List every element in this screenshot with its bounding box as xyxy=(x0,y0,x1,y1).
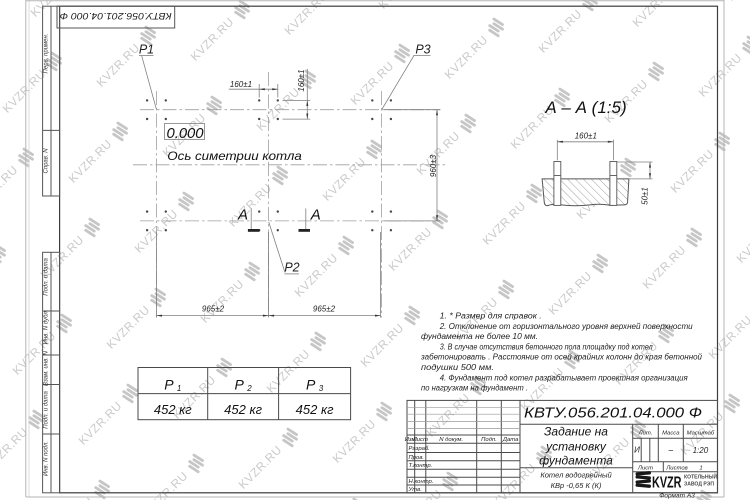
svg-text:КОТЕЛЬНЫЙ: КОТЕЛЬНЫЙ xyxy=(684,473,717,481)
svg-text:Листов: Листов xyxy=(665,466,687,472)
svg-text:А – А (1:5): А – А (1:5) xyxy=(544,98,626,117)
svg-text:Котел водогрейный: Котел водогрейный xyxy=(540,471,612,480)
svg-text:Подп. и дата: Подп. и дата xyxy=(43,391,49,429)
svg-text:P2: P2 xyxy=(284,261,299,275)
svg-text:установку: установку xyxy=(545,440,607,454)
svg-text:960±3: 960±3 xyxy=(429,154,438,177)
svg-text:Н.контр.: Н.контр. xyxy=(409,479,434,485)
svg-text:1: 1 xyxy=(699,466,702,472)
svg-text:фундамента не более 10 мм.: фундамента не более 10 мм. xyxy=(421,331,538,341)
svg-text:Формат А3: Формат А3 xyxy=(659,492,695,499)
svg-text:KVZR: KVZR xyxy=(652,474,682,491)
svg-text:452 кг: 452 кг xyxy=(224,402,262,417)
svg-text:160±1: 160±1 xyxy=(230,80,252,89)
svg-text:Лист: Лист xyxy=(637,466,653,472)
svg-text:–: – xyxy=(668,446,674,455)
svg-text:И: И xyxy=(634,446,640,455)
svg-text:А: А xyxy=(310,206,321,223)
svg-text:КВр -0,65 К (К): КВр -0,65 К (К) xyxy=(551,481,602,490)
svg-text:КВТУ.056.201.04.000 Ф: КВТУ.056.201.04.000 Ф xyxy=(524,405,702,422)
svg-text:Перв. примен.: Перв. примен. xyxy=(43,34,49,74)
svg-text:N докум.: N докум. xyxy=(439,437,463,443)
svg-text:452 кг: 452 кг xyxy=(296,402,334,417)
svg-text:Инв. N дубл.: Инв. N дубл. xyxy=(43,310,49,345)
svg-text:3. В случае отсутствия бет: 3. В случае отсутствия бетонного пола пл… xyxy=(440,341,653,351)
svg-text:160±1: 160±1 xyxy=(297,69,306,91)
svg-text:Инв. N подл.: Инв. N подл. xyxy=(43,441,49,476)
svg-text:КВТУ.056.201.04.000 Ф: КВТУ.056.201.04.000 Ф xyxy=(60,11,172,21)
svg-text:Разраб.: Разраб. xyxy=(409,446,430,452)
svg-text:Дата: Дата xyxy=(502,437,519,443)
svg-text:452 кг: 452 кг xyxy=(154,402,192,417)
svg-text:Лит.: Лит. xyxy=(638,431,653,437)
svg-text:1:20: 1:20 xyxy=(693,446,709,455)
svg-text:Ось симетрии котла: Ось симетрии котла xyxy=(167,149,302,163)
svg-text:Утв.: Утв. xyxy=(408,487,422,493)
svg-text:Подп.: Подп. xyxy=(481,437,497,443)
svg-text:Задание на: Задание на xyxy=(544,425,608,439)
svg-text:Лист: Лист xyxy=(412,437,428,443)
svg-text:забетонировать . Расстояние: забетонировать . Расстояние от осей край… xyxy=(420,352,702,362)
svg-text:P1: P1 xyxy=(139,43,154,57)
svg-text:подушки 500 мм.: подушки 500 мм. xyxy=(421,362,494,372)
svg-text:Масштаб: Масштаб xyxy=(687,431,715,437)
svg-text:Справ. N: Справ. N xyxy=(43,148,49,174)
svg-text:фундамента: фундамента xyxy=(539,454,613,468)
svg-text:Пров.: Пров. xyxy=(409,455,425,461)
svg-text:ЗАВОД РЭП: ЗАВОД РЭП xyxy=(684,482,714,488)
svg-text:4. Фундамент под котел раз: 4. Фундамент под котел разрабатывает про… xyxy=(440,372,688,382)
svg-text:P3: P3 xyxy=(415,43,430,57)
svg-text:по нагрузкам на фундамент .: по нагрузкам на фундамент . xyxy=(421,383,528,393)
svg-text:0.000: 0.000 xyxy=(166,126,204,142)
svg-text:Взам. инв. N: Взам. инв. N xyxy=(43,350,49,386)
svg-text:1. * Размер для справок .: 1. * Размер для справок . xyxy=(440,311,542,321)
svg-text:965±2: 965±2 xyxy=(313,305,336,314)
svg-text:А: А xyxy=(237,206,248,223)
svg-text:965±2: 965±2 xyxy=(202,305,225,314)
svg-text:50±1: 50±1 xyxy=(641,187,650,205)
svg-text:Подп. и дата: Подп. и дата xyxy=(43,258,49,296)
svg-text:Т.контр.: Т.контр. xyxy=(409,463,433,469)
svg-text:2. Отклонение от горизонтал: 2. Отклонение от горизонтального уровня … xyxy=(439,321,693,331)
svg-text:Масса: Масса xyxy=(662,431,680,437)
svg-text:160±1: 160±1 xyxy=(575,132,597,141)
